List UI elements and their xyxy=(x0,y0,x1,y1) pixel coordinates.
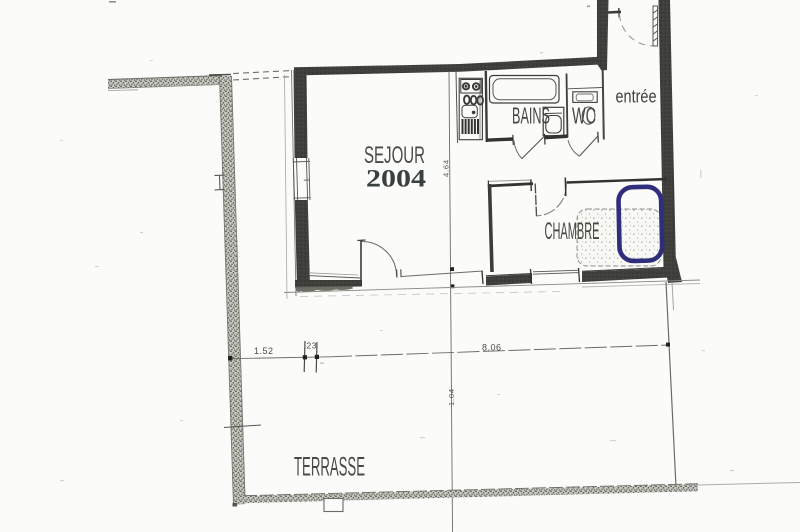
svg-text:23: 23 xyxy=(307,341,317,351)
svg-text:TERRASSE: TERRASSE xyxy=(294,452,365,482)
svg-text:1.04: 1.04 xyxy=(447,389,456,406)
svg-text:CHAMBRE: CHAMBRE xyxy=(545,218,600,245)
svg-text:BAINS: BAINS xyxy=(512,103,550,129)
svg-text:entrée: entrée xyxy=(616,87,657,107)
svg-text:4.64: 4.64 xyxy=(442,160,451,177)
svg-text:WC: WC xyxy=(572,103,596,129)
svg-text:2004: 2004 xyxy=(366,166,427,193)
svg-text:1.52: 1.52 xyxy=(254,346,273,356)
svg-text:8.06: 8.06 xyxy=(482,343,501,353)
